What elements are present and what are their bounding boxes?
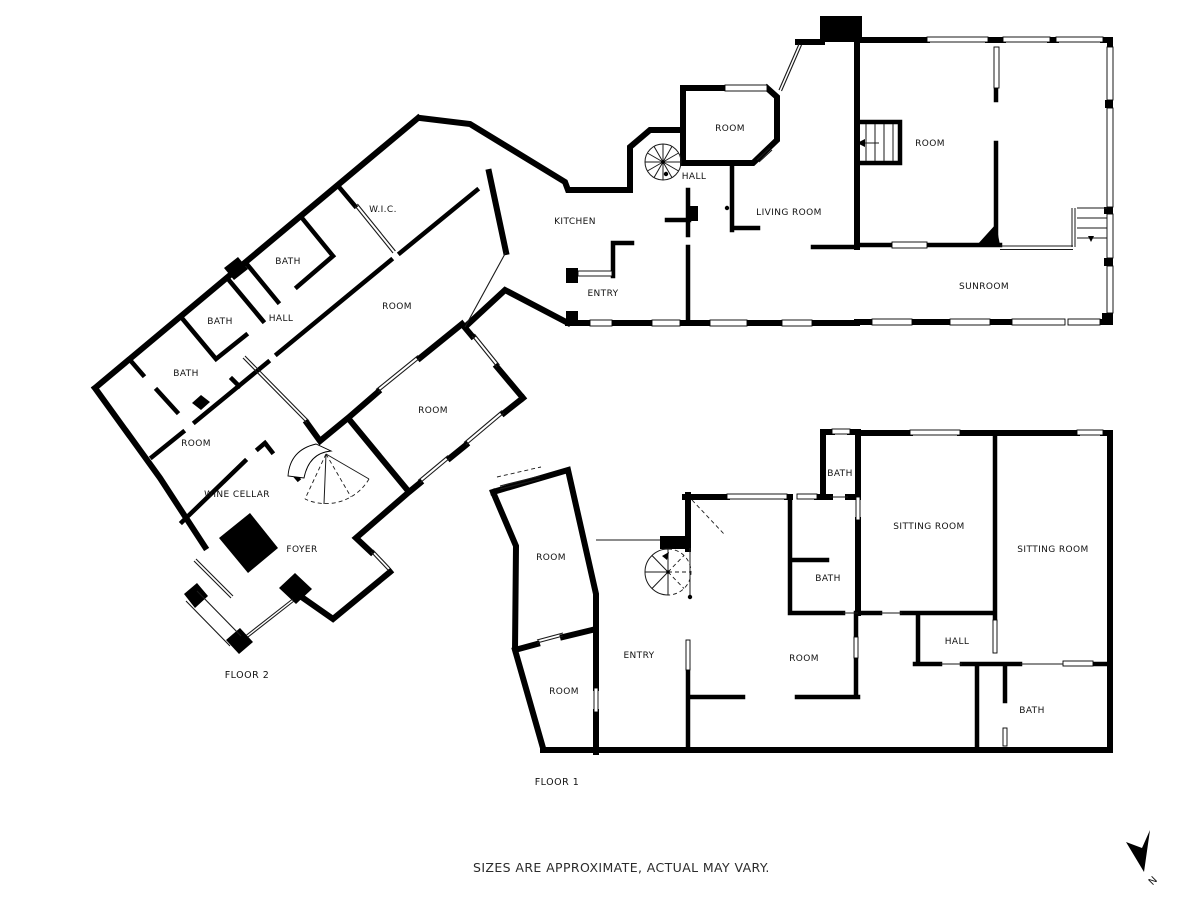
room-label: LIVING ROOM xyxy=(756,208,822,218)
room-label: ENTRY xyxy=(623,651,654,661)
staircase-winder-icon xyxy=(288,444,369,504)
room-label: ROOM xyxy=(418,406,448,416)
floor-plan-drawing: W.I.C. BATH BATH HALL BATH ROOM ROOM WIN… xyxy=(0,0,1200,900)
room-label: HALL xyxy=(682,172,707,182)
staircase-spiral-floor1-icon xyxy=(645,549,691,595)
room-label: ROOM xyxy=(915,139,945,149)
floor1-walls xyxy=(493,432,1110,752)
room-label: ROOM xyxy=(715,124,745,134)
room-label: SUNROOM xyxy=(959,282,1009,292)
room-label: SITTING ROOM xyxy=(1017,545,1088,555)
room-label: ROOM xyxy=(181,439,211,449)
room-label: ROOM xyxy=(536,553,566,563)
room-label: BATH xyxy=(827,469,853,479)
room-label: BATH xyxy=(1019,706,1045,716)
room-label: SITTING ROOM xyxy=(893,522,964,532)
room-label: HALL xyxy=(945,637,970,647)
door-pivot-dot xyxy=(725,206,729,210)
room-label: BATH xyxy=(275,257,301,267)
room-label: FOYER xyxy=(286,545,317,555)
staircase-sunroom-icon xyxy=(1000,208,1107,250)
door-pivot-dot xyxy=(688,595,692,599)
staircase-straight-icon xyxy=(857,124,893,161)
room-label: BATH xyxy=(207,317,233,327)
staircase-spiral-floor2-icon xyxy=(645,144,681,180)
room-label: HALL xyxy=(269,314,294,324)
north-label: N xyxy=(1147,875,1160,888)
room-label: ENTRY xyxy=(587,289,618,299)
room-label: W.I.C. xyxy=(369,205,397,215)
door-pivot-dot xyxy=(664,172,668,176)
floor2-wing-walls xyxy=(95,118,523,654)
floor2-walls xyxy=(420,16,1113,327)
disclaimer-text: SIZES ARE APPROXIMATE, ACTUAL MAY VARY. xyxy=(473,860,770,875)
north-arrow-icon: N xyxy=(1126,830,1160,888)
floor1-label: FLOOR 1 xyxy=(535,777,580,788)
floor2-windows xyxy=(578,37,1113,326)
room-label: ROOM xyxy=(549,687,579,697)
floor2-label: FLOOR 2 xyxy=(225,670,270,681)
room-label: BATH xyxy=(815,574,841,584)
room-label: ROOM xyxy=(789,654,819,664)
room-label: ROOM xyxy=(382,302,412,312)
floor-plan-page: W.I.C. BATH BATH HALL BATH ROOM ROOM WIN… xyxy=(0,0,1200,900)
room-label: WINE CELLAR xyxy=(204,490,270,500)
room-label: KITCHEN xyxy=(554,217,596,227)
room-label: BATH xyxy=(173,369,199,379)
